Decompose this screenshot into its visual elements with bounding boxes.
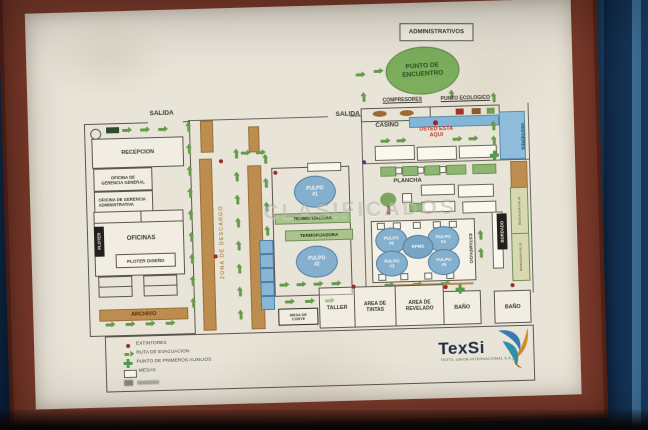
machine-pallet: [259, 240, 273, 254]
bordadora-a-label: BORDADORA DE 20: [517, 196, 522, 224]
evacuation-arrow-icon: [122, 129, 129, 132]
pulpo-1-label: PULPO #1: [303, 185, 327, 198]
extinguisher-dot-icon: [214, 254, 218, 258]
ploter-diseno-label: PLOTER DISEÑO: [127, 257, 165, 263]
exit-label-left: SALIDA: [142, 109, 182, 117]
room-recepcion: RECEPCION: [91, 136, 184, 169]
casino-label: CASINO: [371, 122, 403, 130]
evacuation-arrow-icon: [236, 175, 239, 182]
machine-pallet: [260, 254, 274, 268]
bordado-cabinet: [510, 161, 528, 188]
termofijadora-b-label: TERMOFIJADORA: [300, 232, 338, 238]
machine-bordadora-b: BORDADORA DE 20: [511, 233, 530, 281]
evacuation-arrow-icon: [305, 300, 312, 303]
room-ploter: PLOTER: [94, 227, 105, 257]
plancha-press: [424, 165, 440, 175]
evacuation-arrow-icon: [468, 137, 475, 140]
evacuation-arrow-icon: [313, 283, 320, 286]
legend-route-arrow-icon: [124, 353, 129, 356]
evacuation-arrow-icon: [362, 95, 365, 102]
plancha-press: [472, 164, 496, 175]
evacuation-arrow-icon: [190, 235, 193, 242]
bano-2-label: BAÑO: [505, 303, 521, 309]
recycle-bin-symbol: [472, 108, 481, 114]
recepcion-label: RECEPCION: [121, 149, 154, 156]
wooden-frame: ADMINISTRATIVOS PUNTO DE ENCUENTRO SALID…: [0, 0, 608, 430]
floor-shadow: [0, 410, 648, 430]
work-table: [307, 162, 341, 172]
evacuation-arrow-icon: [285, 300, 292, 303]
vestieres-label: VESTIERES: [519, 122, 525, 149]
evacuation-arrow-icon: [374, 70, 381, 73]
evacuation-arrow-icon: [238, 267, 241, 274]
evacuation-arrow-icon: [158, 128, 165, 131]
room-bano-1: BAÑO: [443, 290, 482, 325]
evacuation-arrow-icon: [238, 244, 241, 251]
first-aid-cross-icon: [490, 151, 499, 160]
pulpo-4-label: PULPO #4: [433, 234, 453, 245]
area-tintas-label: AREA DE TINTAS: [360, 300, 390, 313]
plancha-stool: [417, 167, 424, 174]
evacuation-arrow-icon: [266, 229, 269, 236]
evacuation-arrow-icon: [493, 138, 496, 145]
evacuation-arrow-icon: [165, 322, 172, 325]
pulpo-6-label: PULPO #6: [381, 235, 401, 246]
extinguisher-dot-icon: [219, 159, 223, 163]
extinguisher-dot-icon: [273, 171, 277, 175]
office-cubicle: [93, 211, 141, 224]
evacuation-arrow-icon: [331, 282, 338, 285]
gerencia-administrativa-label: OFICINA DE GERENCIA ADMINISTRATIVA: [98, 196, 148, 207]
rpms-label: RPMS: [412, 244, 425, 250]
area-revelado-label: AREA DE REVELADO: [401, 299, 437, 312]
evacuation-arrow-icon: [188, 147, 191, 154]
evacuation-arrow-icon: [380, 140, 387, 143]
evacuation-arrow-icon: [264, 157, 267, 164]
evacuation-arrow-icon: [191, 257, 194, 264]
evacuation-arrow-icon: [189, 191, 192, 198]
plancha-press: [380, 166, 396, 176]
evacuation-arrow-icon: [125, 323, 132, 326]
evacuation-arrow-icon: [452, 138, 459, 141]
evacuation-arrow-icon: [239, 313, 242, 320]
wall-right-highlight: [632, 0, 641, 430]
pulpo-2-label: PULPO #2: [305, 255, 329, 268]
plancha-stool: [439, 166, 446, 173]
photo-of-evacuation-plan: ADMINISTRATIVOS PUNTO DE ENCUENTRO SALID…: [0, 0, 648, 430]
machine-pallet: [261, 296, 275, 310]
evacuation-arrow-icon: [105, 323, 112, 326]
estampado-stool: [413, 222, 421, 229]
archivo-label: ARCHIVO: [131, 311, 157, 318]
evacuation-arrow-icon: [356, 73, 363, 76]
legend-item-illegible: [124, 380, 133, 386]
evacuation-arrow-icon: [265, 181, 268, 188]
floor-plan-poster: ADMINISTRATIVOS PUNTO DE ENCUENTRO SALID…: [25, 0, 582, 410]
legend-mesa-icon: [124, 370, 137, 378]
bordado-label: BORDADO: [499, 221, 505, 243]
evacuation-arrow-icon: [396, 139, 403, 142]
recycle-bin-symbol: [456, 108, 464, 114]
evacuation-arrow-icon: [192, 301, 195, 308]
evacuation-arrow-icon: [492, 123, 495, 130]
evacuation-arrow-icon: [140, 128, 147, 131]
bano-1-label: BAÑO: [454, 304, 470, 310]
plancha-table: [421, 184, 455, 196]
administrativos-label: ADMINISTRATIVOS: [409, 29, 464, 35]
texsi-bird-logo-icon: [490, 328, 537, 371]
you-are-here-label: USTED ESTA AQUI: [415, 126, 457, 139]
oficinas-label: OFICINAS: [121, 235, 161, 243]
plancha-press: [402, 166, 418, 176]
machine-bordadora-a: BORDADORA DE 20: [510, 187, 529, 234]
evacuation-arrow-icon: [187, 125, 190, 132]
meeting-point-label: PUNTO DE ENCUENTRO: [396, 61, 449, 80]
evacuation-arrow-icon: [480, 251, 483, 258]
plancha-press: [446, 164, 466, 175]
evacuation-arrow-icon: [145, 322, 152, 325]
bordado-label-box: BORDADO: [497, 213, 508, 249]
legend-item-illegible-text: [137, 380, 159, 385]
extinguisher-dot-icon: [351, 285, 355, 289]
evacuation-arrow-icon: [256, 151, 263, 154]
estampado-stool: [424, 272, 432, 279]
machine-pallet: [260, 268, 274, 282]
evacuation-arrow-icon: [479, 233, 482, 240]
evacuation-arrow-icon: [191, 279, 194, 286]
ploter-label: PLOTER: [96, 233, 101, 250]
extinguisher-dot-icon: [444, 285, 448, 289]
loading-zone-wall: [199, 159, 217, 331]
machine-termofijadora-b: TERMOFIJADORA: [285, 229, 353, 242]
taller-label: TALLER: [327, 304, 348, 311]
mesa-de-corte-label: MESA DE CORTE: [283, 312, 313, 321]
evacuation-arrow-icon: [239, 290, 242, 297]
evacuation-arrow-icon: [241, 152, 248, 155]
room-area-tintas: AREA DE TINTAS: [354, 285, 397, 327]
legend-first-aid-icon: [123, 359, 132, 368]
floor-plan: ADMINISTRATIVOS PUNTO DE ENCUENTRO SALID…: [25, 0, 582, 410]
evacuation-arrow-icon: [296, 283, 303, 286]
evacuation-arrow-icon: [237, 221, 240, 228]
plan-desk-symbol: [106, 127, 119, 133]
machine-pallet: [260, 282, 274, 296]
room-taller: TALLER: [319, 287, 356, 329]
room-gerencia-general: OFICINA DE GERENCIA GENERAL: [93, 167, 153, 192]
recycle-bin-symbol: [487, 108, 495, 114]
evacuation-arrow-icon: [236, 198, 239, 205]
room-mesa-de-corte: MESA DE CORTE: [278, 308, 318, 326]
casino-table: [417, 146, 457, 161]
office-table: [143, 285, 177, 297]
room-area-revelado: AREA DE REVELADO: [395, 284, 445, 326]
gerencia-general-label: OFICINA DE GERENCIA GENERAL: [100, 174, 146, 185]
pulpo-5-label: PULPO #5: [434, 257, 454, 268]
bordadora-b-label: BORDADORA DE 20: [518, 243, 523, 271]
texsi-logo-name: TexSi: [438, 338, 485, 359]
wall-right: [604, 0, 648, 430]
evacuation-arrow-icon: [235, 152, 238, 159]
room-ploter-diseno: PLOTER DISEÑO: [116, 253, 176, 269]
evacuation-arrow-icon: [188, 169, 191, 176]
casino-table: [375, 145, 415, 161]
room-bano-2: BAÑO: [494, 290, 532, 324]
loading-zone-wall: [200, 120, 214, 152]
estampado-label: ESTAMPADO: [463, 221, 474, 275]
estampado-stool: [400, 273, 408, 280]
evacuation-arrow-icon: [190, 213, 193, 220]
office-cubicle: [140, 209, 183, 222]
punto-ecologico-label: PUNTO ECOLOGICO: [433, 96, 497, 103]
first-aid-cross-icon: [456, 285, 465, 294]
room-vestieres: VESTIERES: [499, 111, 526, 160]
zona-descargo-label: ZONA DE DESCARGO: [218, 196, 233, 288]
evacuation-arrow-icon: [279, 283, 286, 286]
compresores-label: COMPRESORES: [367, 97, 437, 105]
pulpo-3-label: PULPO #3: [382, 258, 402, 269]
office-table: [98, 286, 132, 298]
administrativos-box: ADMINISTRATIVOS: [399, 23, 473, 41]
plancha-table: [458, 184, 494, 198]
you-are-here-marker-icon: [433, 120, 438, 125]
extinguisher-dot-icon: [511, 283, 515, 287]
plancha-stool: [395, 167, 402, 174]
